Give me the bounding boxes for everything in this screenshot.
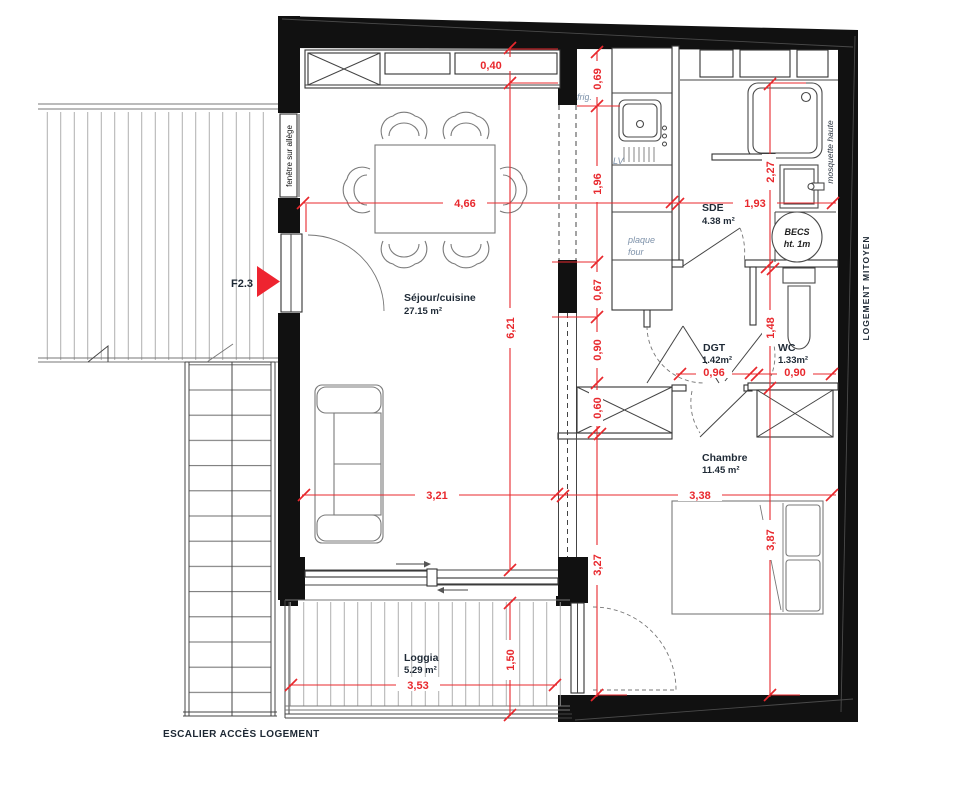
room-label-wc: WC [778, 342, 796, 354]
sofa-icon [315, 385, 383, 543]
svg-text:0,96: 0,96 [703, 367, 724, 379]
room-area-sejour: 27.15 m² [404, 306, 442, 317]
dim-0-96: 0,96 [696, 364, 732, 379]
dim-0-67: 0,67 [589, 272, 604, 308]
svg-text:1,48: 1,48 [765, 317, 777, 338]
dim-1-48: 1,48 [762, 310, 777, 346]
dim-3-53: 3,53 [396, 677, 440, 692]
svg-text:1,50: 1,50 [505, 649, 517, 670]
svg-text:1,93: 1,93 [744, 198, 765, 210]
svg-text:2,27: 2,27 [765, 161, 777, 182]
dim-4-66: 4,66 [443, 195, 487, 210]
sliding-door [305, 561, 558, 594]
svg-text:0,90: 0,90 [784, 367, 805, 379]
dining-table-icon [343, 112, 527, 268]
dim-6-21: 6,21 [502, 308, 517, 348]
svg-text:3,38: 3,38 [689, 490, 710, 502]
staircase [183, 344, 277, 716]
window-fenetre-allege: fenêtre sur allège [278, 113, 300, 198]
dim-1-50: 1,50 [502, 640, 517, 680]
dim-3-21: 3,21 [415, 487, 459, 502]
dim-0-69: 0,69 [589, 61, 604, 97]
room-area-loggia: 5.29 m² [404, 665, 437, 676]
room-label-chambre: Chambre [702, 452, 748, 464]
room-label-dgt: DGT [703, 342, 726, 354]
svg-text:3,21: 3,21 [426, 490, 447, 502]
svg-text:4,66: 4,66 [454, 198, 475, 210]
dim-3-87: 3,87 [762, 520, 777, 560]
window-label: fenêtre sur allège [285, 125, 294, 187]
svg-text:0,90: 0,90 [592, 339, 604, 360]
svg-text:3,27: 3,27 [592, 554, 604, 575]
chambre-door [691, 390, 748, 437]
closet-right [757, 390, 833, 437]
floor-plan-drawing: fenêtre sur allège F2.3 [0, 0, 965, 800]
bed-icon [672, 501, 823, 614]
dim-1-96: 1,96 [589, 166, 604, 202]
moustiquaire-label: mosquette haute [825, 120, 835, 184]
dim-3-38: 3,38 [678, 487, 722, 502]
room-label-loggia: Loggia [404, 652, 439, 664]
entrance-door [278, 233, 384, 313]
shower-icon [748, 83, 822, 158]
svg-text:0,69: 0,69 [592, 68, 604, 89]
entrance-code-label: F2.3 [231, 278, 253, 290]
svg-text:0,60: 0,60 [592, 397, 604, 418]
dim-0-60: 0,60 [589, 390, 604, 426]
svg-text:1,96: 1,96 [592, 173, 604, 194]
washbasin-icon [780, 165, 824, 208]
sde-cabinets [680, 50, 838, 80]
dishwasher-label: LV [613, 156, 625, 166]
svg-text:0,67: 0,67 [592, 279, 604, 300]
becs-label: BECS [784, 227, 809, 237]
dim-3-27: 3,27 [589, 545, 604, 585]
svg-text:0,40: 0,40 [480, 60, 501, 72]
dim-0-90-wc: 0,90 [777, 364, 813, 379]
terrace-deck [38, 104, 278, 362]
becs-height-label: ht. 1m [784, 239, 811, 249]
room-area-chambre: 11.45 m² [702, 465, 740, 476]
escalier-label: ESCALIER ACCÈS LOGEMENT [163, 727, 320, 740]
toilet-icon [783, 268, 815, 349]
dim-0-40: 0,40 [471, 57, 511, 72]
room-label-sejour: Séjour/cuisine [404, 292, 476, 304]
slide-arrow-left-icon [437, 587, 444, 594]
room-area-sde: 4.38 m² [702, 216, 735, 227]
svg-text:3,87: 3,87 [765, 529, 777, 550]
dim-2-27: 2,27 [762, 154, 777, 190]
logement-mitoyen-label: LOGEMENT MITOYEN [861, 235, 871, 340]
svg-text:6,21: 6,21 [505, 317, 517, 338]
dim-0-90-kitchen: 0,90 [589, 332, 604, 368]
loggia-window-swing [593, 607, 676, 690]
room-label-sde: SDE [702, 202, 724, 214]
hob-label: plaque [627, 235, 655, 245]
sde-door [683, 228, 745, 266]
floor-plan-page: fenêtre sur allège F2.3 [0, 0, 965, 800]
oven-label: four [628, 247, 645, 257]
water-heater-icon: BECS ht. 1m [772, 212, 836, 262]
slide-arrow-right-icon [424, 561, 431, 568]
svg-text:3,53: 3,53 [407, 680, 428, 692]
